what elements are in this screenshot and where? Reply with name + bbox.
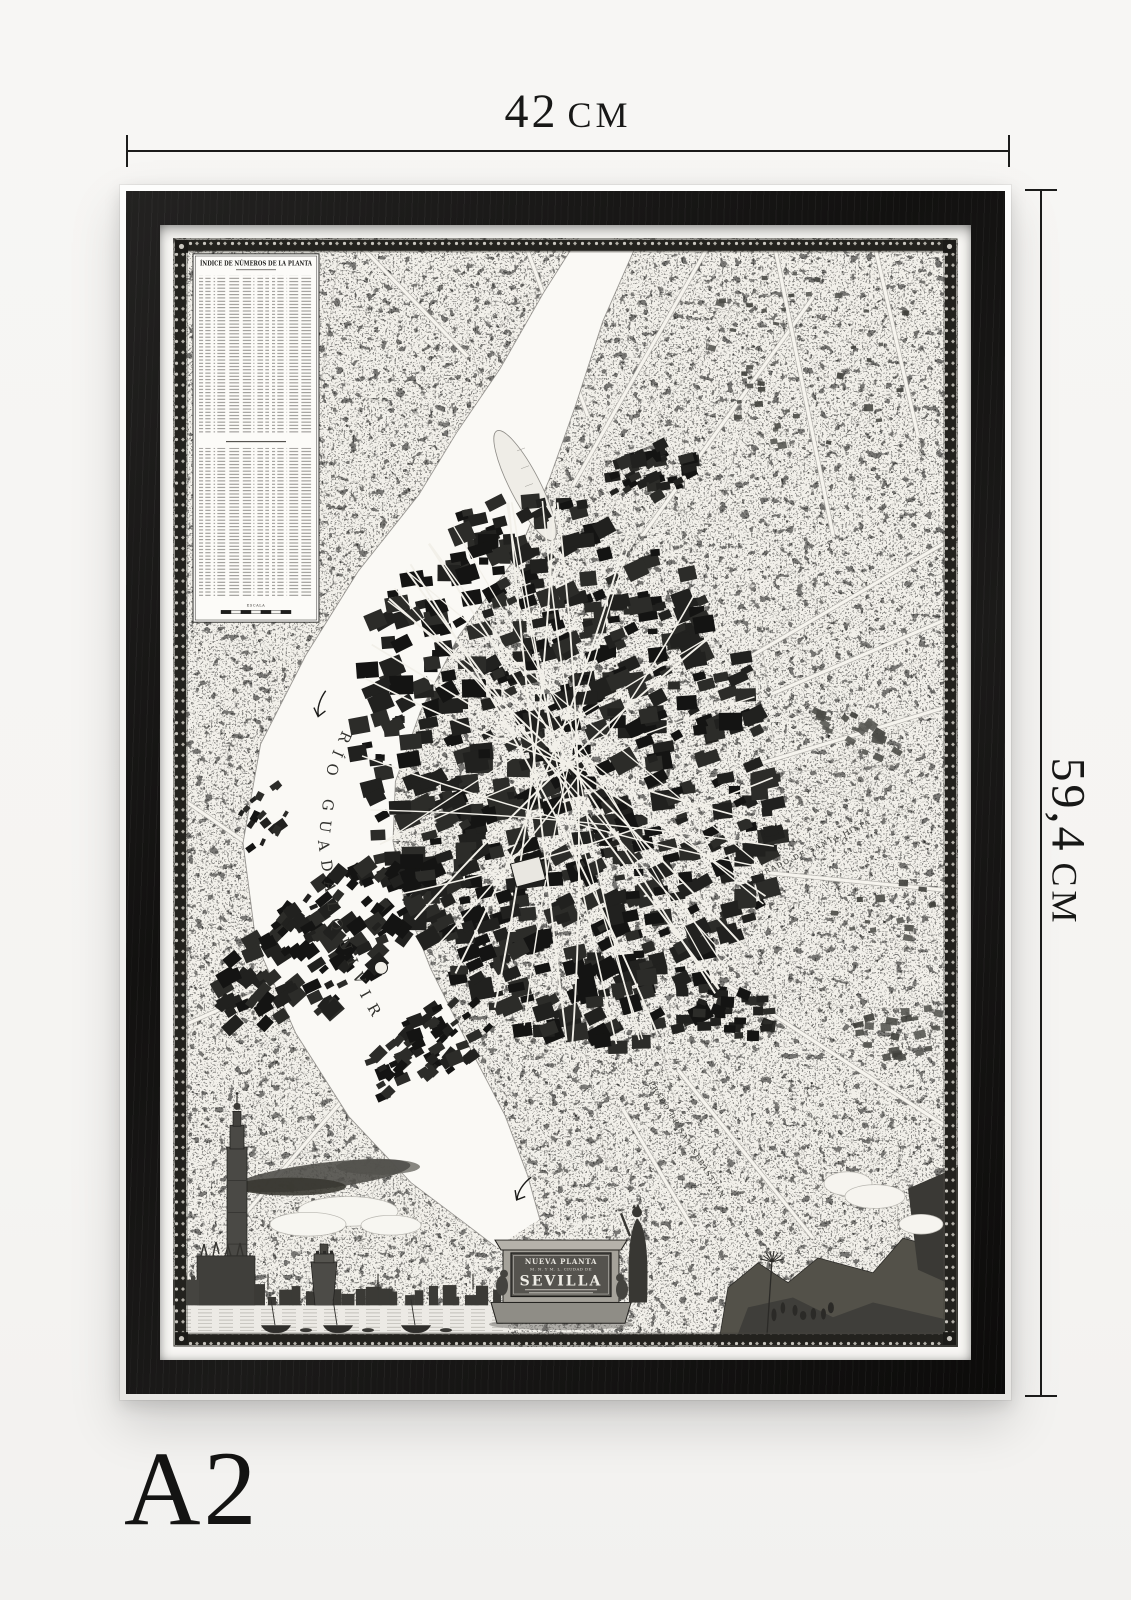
height-value: 59,4 [1042, 757, 1095, 853]
product-mockup-scene: 42CM 59,4CM A2 [0, 0, 1131, 1600]
scale-bar [221, 610, 291, 613]
cartouche-line2: M. N. Y M. L. CIUDAD DE [530, 1266, 592, 1271]
height-unit: CM [1045, 862, 1085, 926]
poster-frame: RÍO GUADALQUIVIR ÍNDICE DE NÚMEROS DE LA… [120, 185, 1011, 1400]
scale-label: ESCALA [247, 603, 265, 607]
width-dimension-line [126, 150, 1010, 152]
cartouche-line1: NUEVA PLANTA [525, 1257, 597, 1266]
map-artwork: RÍO GUADALQUIVIR ÍNDICE DE NÚMEROS DE LA… [173, 238, 958, 1347]
width-value: 42 [504, 85, 558, 138]
paper-size-label: A2 [124, 1428, 260, 1550]
index-table-title: ÍNDICE DE NÚMEROS DE LA PLANTA [200, 260, 312, 268]
height-dimension-label: 59,4CM [1041, 757, 1096, 926]
width-unit: CM [567, 95, 631, 135]
width-dimension-label: 42CM [126, 84, 1010, 139]
index-table: ÍNDICE DE NÚMEROS DE LA PLANTA ESCALA [193, 254, 319, 622]
cartouche-title: SEVILLA [520, 1274, 603, 1290]
seville-map: RÍO GUADALQUIVIR ÍNDICE DE NÚMEROS DE LA… [173, 238, 958, 1347]
